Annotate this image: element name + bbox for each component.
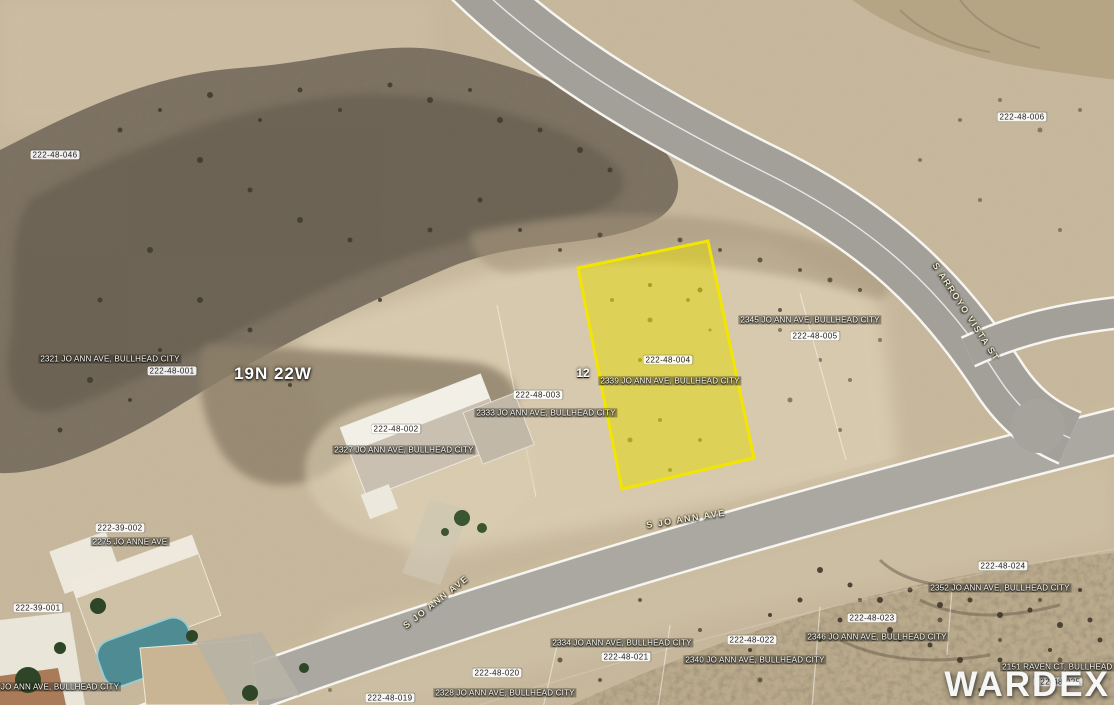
aerial-parcel-map: 222-48-046222-48-006S ARROYO VISTA ST234… (0, 0, 1114, 705)
watermark-logo: WARDEX (944, 665, 1110, 705)
intersection (1011, 399, 1065, 453)
aerial-basemap (0, 0, 1114, 705)
